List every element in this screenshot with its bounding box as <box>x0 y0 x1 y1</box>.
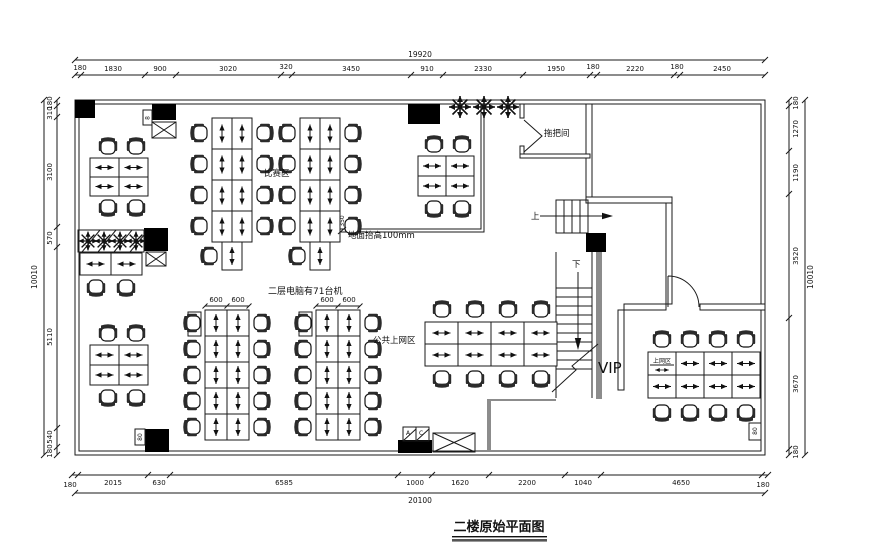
chair-icon <box>257 217 274 235</box>
desk-dim: 600 <box>320 296 333 304</box>
dim: 310 <box>46 106 54 119</box>
chair-icon <box>127 324 145 341</box>
dim: 180 <box>792 445 800 458</box>
dim: 4650 <box>672 479 690 487</box>
vip-area-label: 上网区 <box>653 357 671 365</box>
dim: 2450 <box>713 65 731 73</box>
mop-room-door <box>524 120 542 152</box>
chair-icon <box>499 300 517 317</box>
dim: 2220 <box>626 65 644 73</box>
chair-icon <box>425 201 443 218</box>
chair-icon <box>200 247 217 265</box>
chair-icon <box>345 155 362 173</box>
chair-icon <box>127 137 145 154</box>
chair-icon <box>254 392 271 410</box>
dim: 1040 <box>574 479 592 487</box>
dim: 180 <box>63 481 76 489</box>
chair-icon <box>453 135 471 152</box>
dim: 3100 <box>46 163 54 181</box>
chair-icon <box>365 418 382 436</box>
chair-icon <box>433 300 451 317</box>
dim: 3450 <box>342 65 360 73</box>
dimension-top: 19920 180 1830 900 3020 320 3450 910 233… <box>72 50 768 78</box>
tag: 8 <box>145 116 152 120</box>
plant-icon <box>473 96 495 118</box>
chair-icon <box>254 314 271 332</box>
dim: 180 <box>46 444 54 457</box>
dim: 180 <box>756 481 769 489</box>
dim: 2015 <box>104 479 122 487</box>
stairs-up-label: 上 <box>531 212 540 222</box>
x-box <box>152 122 176 138</box>
chair-icon <box>709 330 727 347</box>
floor-raised-label: 地面抬高100mm <box>348 230 415 241</box>
chair-icon <box>288 247 305 265</box>
plant-icon <box>79 232 98 251</box>
chair-icon <box>433 371 451 388</box>
column <box>586 233 606 252</box>
ac-unit: A C <box>403 427 429 441</box>
entrance-plants <box>449 96 519 118</box>
right-door <box>668 276 699 307</box>
dim: 910 <box>420 65 433 73</box>
chair-icon <box>737 405 755 422</box>
desk-group-topleft <box>90 137 148 217</box>
chair-icon <box>294 366 311 384</box>
chair-icon <box>257 186 274 204</box>
title-text: 二楼原始平面图 <box>453 519 544 535</box>
chair-icon <box>466 371 484 388</box>
floorplan-drawing: 19920 180 1830 900 3020 320 3450 910 233… <box>0 0 880 557</box>
dim: 1620 <box>451 479 469 487</box>
chair-icon <box>87 280 105 297</box>
public-area-label: 公共上网区 <box>373 336 416 346</box>
chair-icon <box>532 300 550 317</box>
desk-dim: 600 <box>231 296 244 304</box>
chair-icon <box>190 217 207 235</box>
chair-icon <box>117 280 135 297</box>
chair-icon <box>127 200 145 217</box>
vip-label: VIP <box>598 359 622 377</box>
chair-icon <box>254 366 271 384</box>
shaft-wall <box>487 400 491 452</box>
chair-icon <box>190 155 207 173</box>
x-box <box>146 252 166 266</box>
chair-icon <box>453 201 471 218</box>
desk-column-lower-a: 600 600 750 <box>183 296 271 440</box>
dimension-bottom: 180 2015 630 6585 1000 1620 2200 1040 46… <box>63 472 771 505</box>
dim-total-right: 10010 <box>806 265 815 289</box>
plant-icon <box>127 232 146 251</box>
chair-icon <box>345 124 362 142</box>
chair-icon <box>532 371 550 388</box>
chair-icon <box>466 300 484 317</box>
dim: 1000 <box>406 479 424 487</box>
competition-area-label: 比赛区 <box>264 168 290 179</box>
desk-row-vip: 上网区 <box>648 330 760 422</box>
dim: 2330 <box>474 65 492 73</box>
chair-icon <box>190 124 207 142</box>
plant-icon <box>95 232 114 251</box>
tag: 80 <box>137 433 144 441</box>
ac-label-a: A <box>406 430 411 437</box>
dim: 570 <box>46 231 54 244</box>
dim: 180 <box>73 64 86 72</box>
computers-note: 二层电脑有71台机 <box>268 285 342 297</box>
platform-step-dim: 350 <box>339 215 346 227</box>
chair-icon <box>183 314 200 332</box>
dim: 630 <box>152 479 165 487</box>
plant-icon <box>497 96 519 118</box>
chair-icon <box>183 366 200 384</box>
desk-column-upper-a <box>190 118 274 270</box>
plant-icon <box>449 96 471 118</box>
chair-icon <box>278 217 295 235</box>
chair-icon <box>99 390 117 407</box>
exterior-walls <box>75 100 765 455</box>
tag: 80 <box>752 427 759 435</box>
desk-group-topright <box>418 135 474 218</box>
chair-icon <box>365 314 382 332</box>
dim: 1830 <box>104 65 122 73</box>
dim: 1190 <box>792 164 800 182</box>
desk-row-public <box>425 300 557 388</box>
dim: 3670 <box>792 375 800 393</box>
chair-icon <box>99 137 117 154</box>
stairs-down-label: 下 <box>572 260 581 270</box>
chair-icon <box>365 366 382 384</box>
chair-icon <box>127 390 145 407</box>
dim: 180 <box>792 96 800 109</box>
chair-icon <box>294 340 311 358</box>
plant-icon <box>111 232 130 251</box>
chair-icon <box>183 418 200 436</box>
floorplan-page: 19920 180 1830 900 3020 320 3450 910 233… <box>0 0 880 557</box>
chair-icon <box>499 371 517 388</box>
dimension-left: 10010 180 310 3100 570 5110 540 180 <box>30 96 60 458</box>
chair-icon <box>278 186 295 204</box>
desk-group-planter <box>80 253 142 297</box>
chair-icon <box>294 392 311 410</box>
chair-icon <box>183 340 200 358</box>
dim: 180 <box>586 63 599 71</box>
chair-icon <box>254 340 271 358</box>
dim: 5110 <box>46 328 54 346</box>
ac-label-c: C <box>419 430 423 437</box>
drawing-title: 二楼原始平面图 <box>452 519 547 542</box>
chair-icon <box>190 186 207 204</box>
desk-dim: 600 <box>209 296 222 304</box>
x-box <box>433 433 475 452</box>
chair-icon <box>183 392 200 410</box>
chair-icon <box>425 135 443 152</box>
chair-icon <box>653 405 671 422</box>
chair-icon <box>99 200 117 217</box>
chair-icon <box>254 418 271 436</box>
chair-icon <box>709 405 727 422</box>
dim-total-left: 10010 <box>30 265 39 289</box>
chair-icon <box>345 186 362 204</box>
dim: 540 <box>46 430 54 443</box>
chair-icon <box>294 418 311 436</box>
chair-icon <box>365 392 382 410</box>
desk-dim: 600 <box>342 296 355 304</box>
chair-icon <box>257 124 274 142</box>
dim: 900 <box>153 65 166 73</box>
interior-walls <box>338 104 765 452</box>
chair-icon <box>681 405 699 422</box>
chair-icon <box>294 314 311 332</box>
dimension-right: 10010 180 1270 1190 3520 3670 180 <box>786 96 815 458</box>
dim: 3520 <box>792 247 800 265</box>
dim: 6585 <box>275 479 293 487</box>
chair-icon <box>99 324 117 341</box>
desk-column-upper-b <box>278 118 362 270</box>
chair-icon <box>737 330 755 347</box>
desk-group-bottomleft <box>90 324 148 407</box>
dim-total-bottom: 20100 <box>408 496 432 505</box>
dim: 320 <box>279 63 292 71</box>
chair-icon <box>681 330 699 347</box>
dim-total-top: 19920 <box>408 50 432 59</box>
dim: 180 <box>670 63 683 71</box>
dim: 1950 <box>547 65 565 73</box>
chair-icon <box>653 330 671 347</box>
dim: 3020 <box>219 65 237 73</box>
chair-icon <box>278 124 295 142</box>
mop-room-label: 拖把间 <box>544 128 570 139</box>
dim: 1270 <box>792 120 800 138</box>
desk-column-lower-b: 600 600 750 <box>294 296 382 440</box>
dim: 2200 <box>518 479 536 487</box>
planter-box <box>78 230 145 252</box>
